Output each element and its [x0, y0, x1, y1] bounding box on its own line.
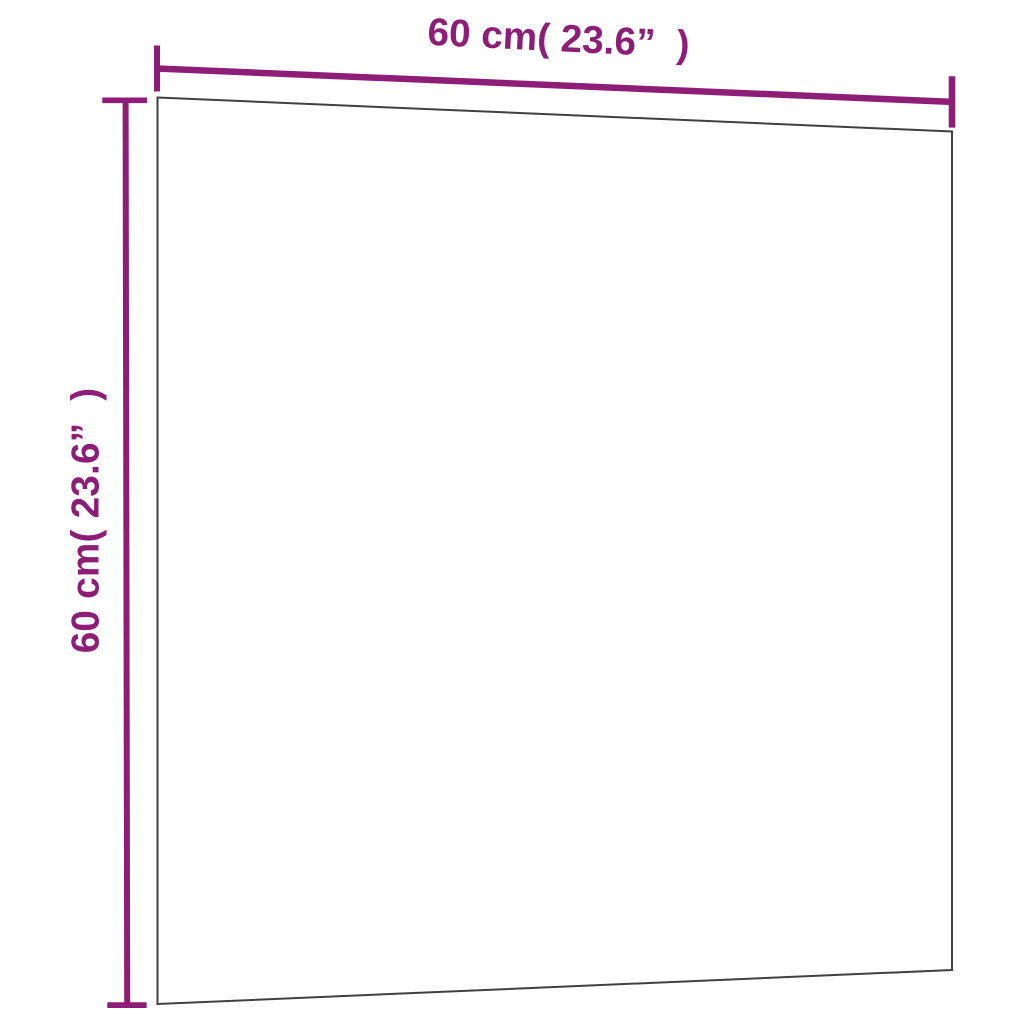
svg-text:60 cm( 23.6” ): 60 cm( 23.6” ) [65, 388, 108, 654]
